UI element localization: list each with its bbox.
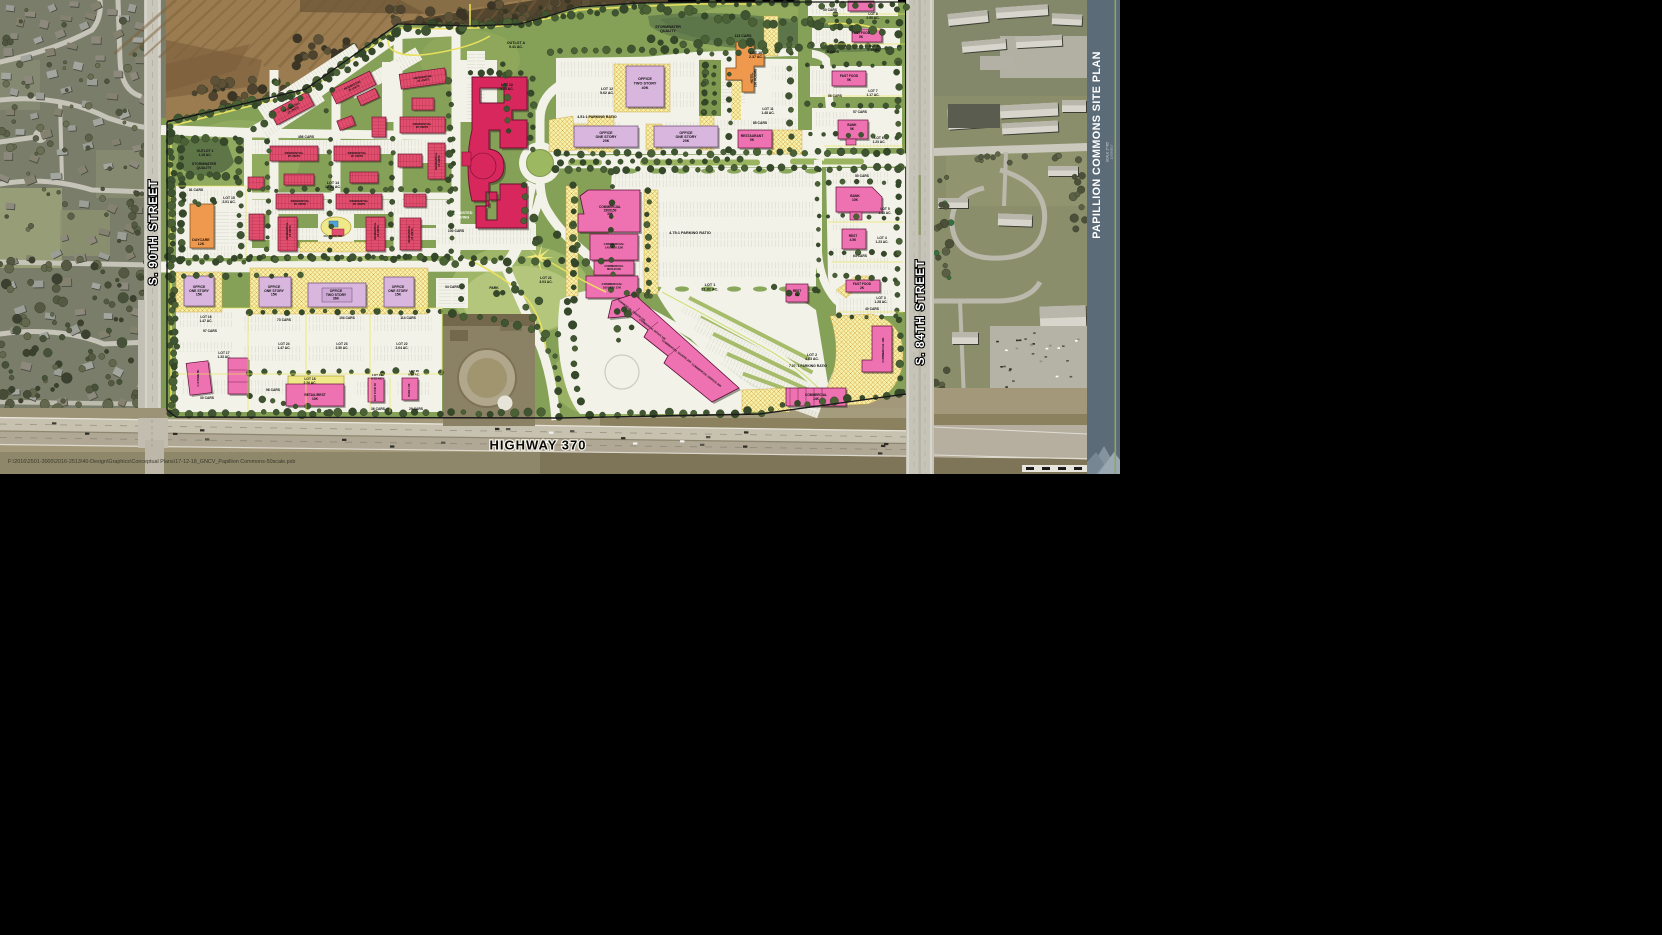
svg-text:LOT 24.63 AC.: LOT 24.63 AC. xyxy=(805,353,819,361)
svg-text:97 CARS: 97 CARS xyxy=(203,329,218,333)
svg-text:LOT 125.62 AC.: LOT 125.62 AC. xyxy=(600,87,614,95)
svg-text:LOT 182.26 AC.: LOT 182.26 AC. xyxy=(304,377,317,385)
svg-text:85 CARS: 85 CARS xyxy=(753,121,768,125)
svg-text:BANK 1.5K: BANK 1.5K xyxy=(408,383,411,396)
svg-text:LOT 41.23 AC.: LOT 41.23 AC. xyxy=(876,236,889,244)
svg-text:PAPILLION COMMONS SITE PLAN: PAPILLION COMMONS SITE PLAN xyxy=(1091,51,1103,239)
svg-text:LOT 161.47 AC.: LOT 161.47 AC. xyxy=(200,315,213,323)
svg-text:OUTLOT A9.41 AC.: OUTLOT A9.41 AC. xyxy=(507,41,526,49)
svg-text:LOT 1412.40 AC.: LOT 1412.40 AC. xyxy=(325,181,341,189)
svg-text:36 CARS: 36 CARS xyxy=(371,407,386,411)
svg-text:LOT 102.37 AC.: LOT 102.37 AC. xyxy=(749,51,763,59)
svg-text:PARK: PARK xyxy=(489,286,499,290)
svg-text:81 CARS: 81 CARS xyxy=(189,188,204,192)
svg-text:50 CARS: 50 CARS xyxy=(855,174,870,178)
svg-text:FAST FOOD 3K: FAST FOOD 3K xyxy=(374,383,377,401)
svg-text:LOT 200.89 AC.: LOT 200.89 AC. xyxy=(408,369,420,377)
svg-text:LOT 190.72 AC.: LOT 190.72 AC. xyxy=(371,373,383,381)
svg-text:LOT 232.50 AC.: LOT 232.50 AC. xyxy=(336,342,349,350)
svg-text:COMMERCIAL105X150 15K: COMMERCIAL105X150 15K xyxy=(602,282,623,289)
svg-text:7.07: 1 PARKING RATIO: 7.07: 1 PARKING RATIO xyxy=(789,364,827,368)
svg-text:LOT 222.04 AC.: LOT 222.04 AC. xyxy=(396,342,409,350)
svg-text:104 CARS: 104 CARS xyxy=(339,316,356,320)
svg-text:LOT 130.25 AC.: LOT 130.25 AC. xyxy=(500,83,513,91)
svg-text:LOT 71.17 AC.: LOT 71.17 AC. xyxy=(867,89,880,97)
svg-text:REST4.5K: REST4.5K xyxy=(849,234,858,242)
svg-text:OUTLOT 11.16 AC.: OUTLOT 11.16 AC. xyxy=(197,149,214,157)
svg-text:114 CARS: 114 CARS xyxy=(400,316,416,320)
svg-text:29 CARS: 29 CARS xyxy=(409,407,424,411)
svg-text:57 CARS: 57 CARS xyxy=(853,110,868,114)
svg-text:30 CARS: 30 CARS xyxy=(823,8,838,12)
svg-text:4.75:1 PARKING RATIO: 4.75:1 PARKING RATIO xyxy=(669,231,711,235)
svg-text:34 CARS: 34 CARS xyxy=(445,285,460,289)
svg-text:100 CARS: 100 CARS xyxy=(448,229,465,233)
svg-text:LOT 213.03 AC.: LOT 213.03 AC. xyxy=(539,276,552,284)
svg-text:LOT 80.90 AC.: LOT 80.90 AC. xyxy=(867,12,880,20)
svg-text:HIGHWAY 370: HIGHWAY 370 xyxy=(490,438,587,453)
svg-text:40 CARS: 40 CARS xyxy=(865,307,880,311)
svg-text:COMMERCIAL145X100 22K: COMMERCIAL145X100 22K xyxy=(604,242,625,249)
svg-text:LOT 111.48 AC.: LOT 111.48 AC. xyxy=(761,107,774,115)
svg-text:113 CARS: 113 CARS xyxy=(735,34,753,38)
svg-text:LOT 171.33 AC.: LOT 171.33 AC. xyxy=(218,351,231,359)
svg-text:36 CARS: 36 CARS xyxy=(825,50,840,54)
svg-text:456 CARS: 456 CARS xyxy=(298,135,315,139)
svg-text:S. 90TH STREET: S. 90TH STREET xyxy=(148,179,160,285)
svg-text:LOT 51.43 AC.: LOT 51.43 AC. xyxy=(879,207,892,215)
svg-text:56 CARS: 56 CARS xyxy=(828,94,843,98)
svg-text:COMMERCIAL 16K: COMMERCIAL 16K xyxy=(881,337,885,362)
svg-text:F:\2016\2501-3000\2016-2513\40: F:\2016\2501-3000\2016-2513\40-Design\Gr… xyxy=(8,459,295,465)
svg-text:73 CARS: 73 CARS xyxy=(277,318,292,322)
svg-text:CLUBHOUSE: CLUBHOUSE xyxy=(323,234,342,238)
svg-text:30 CARS: 30 CARS xyxy=(200,396,215,400)
svg-text:64 CARS: 64 CARS xyxy=(853,254,868,258)
svg-text:LOT 152.01 AC.: LOT 152.01 AC. xyxy=(222,196,235,204)
svg-text:C-STORE 5K: C-STORE 5K xyxy=(196,370,200,387)
svg-text:LOT 241.47 AC.: LOT 241.47 AC. xyxy=(278,342,291,350)
svg-text:12/18/2017: 12/18/2017 xyxy=(1110,144,1114,159)
svg-text:96 CARS: 96 CARS xyxy=(266,388,281,392)
svg-text:S. 84TH STREET: S. 84TH STREET xyxy=(915,259,927,365)
svg-text:COMMERCIAL80X140 8K: COMMERCIAL80X140 8K xyxy=(604,264,624,271)
svg-text:4.51:1 PARKING RATIO: 4.51:1 PARKING RATIO xyxy=(577,115,617,119)
svg-text:LOT 31.28 AC.: LOT 31.28 AC. xyxy=(875,296,888,304)
svg-text:LOT 61.23 AC.: LOT 61.23 AC. xyxy=(873,136,886,144)
svg-text:LOT 90.90 AC.: LOT 90.90 AC. xyxy=(868,44,881,52)
